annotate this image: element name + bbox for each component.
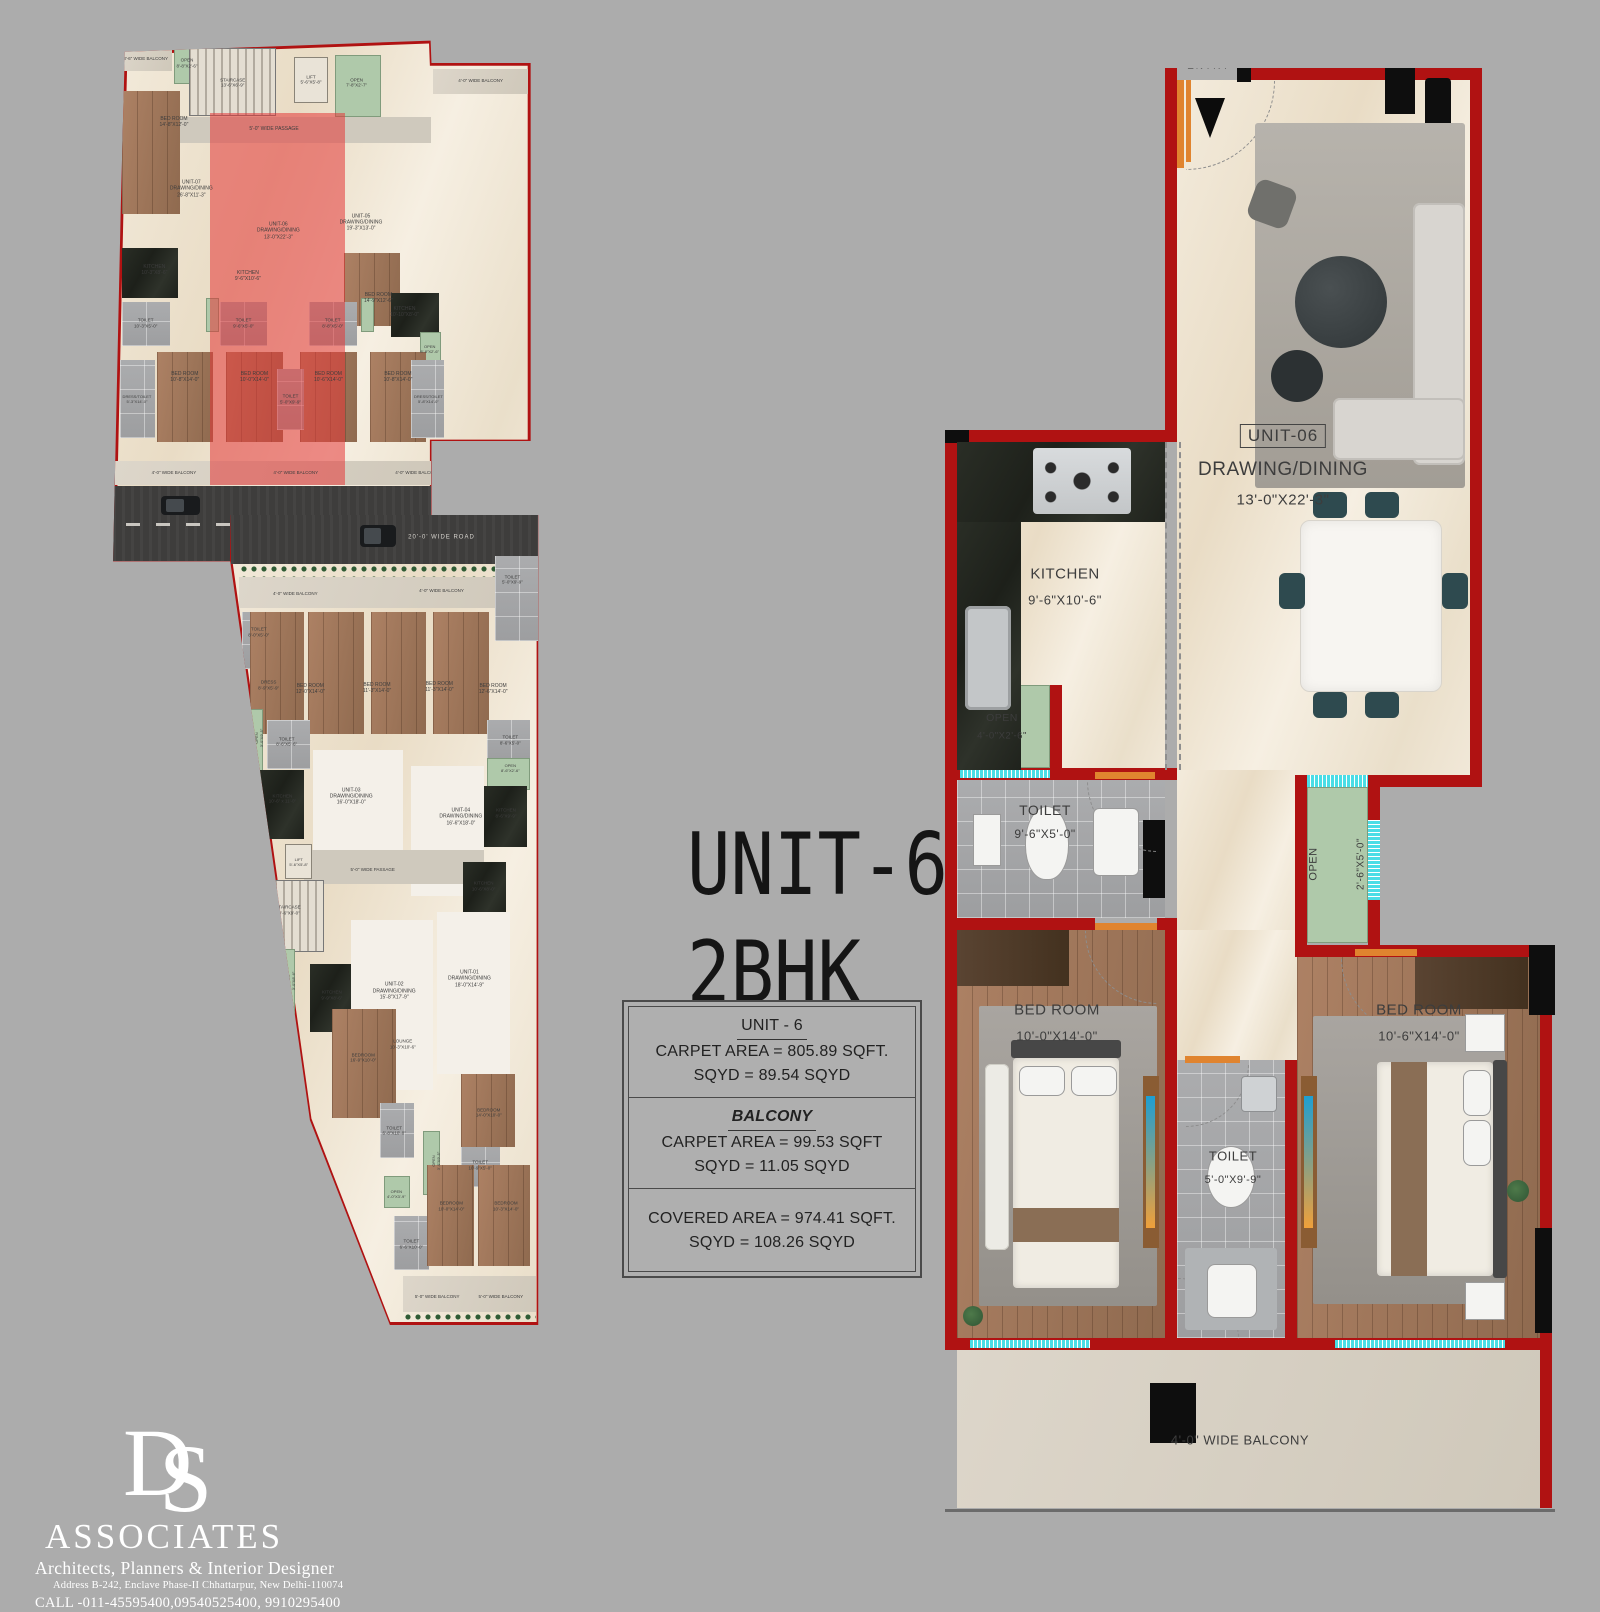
plan-room-label: OPEN 3'-0"X8'-6": [286, 971, 296, 990]
toilet-a-label: TOILET: [1019, 802, 1071, 818]
plan-room-label: KITCHEN 10'-6" x 11'-0": [269, 793, 296, 804]
plan-room-label: BED ROOM 11'-3"X14'-0": [425, 680, 453, 693]
washbasin-icon: [1093, 808, 1139, 876]
plan-area-wood: [427, 1165, 474, 1265]
plan-room-label: BED ROOM 12'-0"X14'-0": [296, 683, 325, 696]
logo-phone: CALL -011-45595400,09540525400, 99102954…: [35, 1595, 341, 1612]
plan-room-label: KITCHEN 9'-6"X10'-6": [235, 270, 261, 283]
column: [1535, 1228, 1552, 1333]
open-b-dim: 2'-6"X5'-0": [1356, 789, 1367, 939]
w-element: [945, 430, 1177, 442]
bedroom-right-dim: 10'-6"X14'-0": [1378, 1029, 1459, 1044]
plan-room-label: OPEN 8'-8"X2'-6": [177, 57, 198, 68]
plan-area-hedge: [239, 564, 536, 576]
balcony-label: 4'-0" WIDE BALCONY: [1171, 1433, 1309, 1448]
kitchen-divider-dashed: [1165, 442, 1181, 770]
plan-area-wood: [308, 612, 364, 734]
toilet-a-window: [960, 770, 1050, 778]
plan-room-label: TOILET 9'-6"X5'-0": [233, 318, 254, 329]
toilet-b-label: TOILET: [1209, 1149, 1257, 1164]
washbasin-icon: [1207, 1264, 1257, 1318]
pillow: [1019, 1066, 1065, 1096]
plan-room-label: 5'-0" WIDE BALCONY: [415, 1294, 460, 1300]
plan-room-label: BED ROOM 11'-3"X14'-0": [363, 681, 391, 694]
w-element: [1470, 68, 1482, 787]
plan-room-label: BED ROOM 10'-0"X14'-0": [240, 370, 269, 383]
logo-letter-s: S: [159, 1431, 212, 1527]
plant-icon: [1507, 1180, 1529, 1202]
wardrobe: [957, 930, 1069, 986]
plan-room-label: TOILET 5'-0"X9'-9": [280, 393, 301, 404]
toilet-a-dim: 9'-6"X5'-0": [1014, 827, 1075, 841]
plan-room-label: TOILET 8'-0"X5'-0": [248, 627, 269, 638]
bedroom-left-door: [1095, 923, 1157, 930]
w-element: [1540, 1350, 1552, 1508]
sink-icon: [965, 606, 1011, 710]
pillow: [1463, 1070, 1491, 1116]
plan-area-wood: [433, 612, 489, 734]
w-element: [945, 442, 957, 1350]
plan-room-label: KITCHEN 10'-10"X8'-0": [390, 306, 419, 319]
nightstand: [1465, 1282, 1505, 1320]
plan-room-label: DRESS/TOILET 5'-3"X14'-0": [123, 394, 152, 404]
w-element: [945, 918, 1095, 930]
bedroom-left-label: BED ROOM: [1014, 1002, 1100, 1019]
balcony-floor: [957, 1350, 1540, 1508]
key-plan-lower-rooms: 20'-0' WIDE ROAD4'-0" WIDE BALCONY4'-0" …: [205, 515, 635, 1325]
plan-room-label: STAIRCASE 13'-6"X6'-9": [220, 77, 245, 88]
plan-room-label: UNIT-03 DRAWING/DINING 16'-0"X18'-0": [330, 788, 373, 807]
plan-room-label: 5'-0" WIDE BALCONY: [478, 1294, 523, 1300]
w-element: [1285, 1060, 1297, 1338]
unit-number-badge: UNIT-06: [1240, 424, 1326, 448]
key-plan-upper-rooms: 3'-6" WIDE BALCONYOPEN 8'-8"X2'-6"STAIRC…: [100, 35, 535, 595]
plan-room-label: TOILET 8'-8"X5'-0": [322, 318, 343, 329]
entry-label: ENTRY: [1187, 68, 1231, 72]
plan-area-granite: [257, 770, 304, 839]
plan-room-label: UNIT-07 DRAWING/DINING 26'-8"X11'-3": [170, 180, 213, 199]
unit-6-plan: ENTRY UNIT-06 DRAWING/DINING 13'-0"X22'-…: [945, 68, 1560, 1523]
sheet-title: UNIT-6 2BHK: [687, 822, 948, 1016]
covered-sqyd: SQYD = 108.26 SQYD: [689, 1234, 855, 1251]
plan-room-label: 4'-0" WIDE BALCONY: [273, 470, 318, 476]
dining-chair: [1279, 573, 1305, 609]
balcony-sqyd: SQYD = 11.05 SQYD: [694, 1158, 850, 1175]
plan-room-label: OPEN 8'-8"X2'-6": [420, 344, 439, 354]
covered-area-section: COVERED AREA = 974.41 SQFT. SQYD = 108.2…: [629, 1188, 915, 1271]
plan-room-label: UNIT-05 DRAWING/DINING 19'-3"X13'-0": [340, 213, 383, 232]
bedroom-right-label: BED ROOM: [1376, 1002, 1462, 1019]
w-element: [1157, 918, 1177, 930]
drawing-dining-label: DRAWING/DINING: [1198, 459, 1368, 481]
plan-area-wood: [371, 612, 427, 734]
open-a-label: OPEN: [986, 712, 1018, 724]
plan-room-label: BEDROOM 16'-9"X10'-0": [350, 1052, 376, 1063]
bench: [985, 1064, 1009, 1250]
plan-room-label: 4'-0" WIDE BALCONY: [152, 470, 197, 476]
plan-room-label: 5'-0" WIDE PASSAGE: [249, 125, 298, 131]
bed-runner: [1391, 1062, 1427, 1276]
plan-area-wood: [157, 352, 214, 442]
plan-room-label: DRESS 8'-9"X5'-9": [258, 679, 279, 690]
plan-room-label: TOILET 10'-9"X5'-0": [468, 1160, 491, 1171]
logo-tagline: Architects, Planners & Interior Designer: [35, 1558, 334, 1579]
plan-room-label: LOUNGE 10'-3"X10'-6": [390, 1038, 416, 1049]
plan-room-label: BED ROOM 12'-6"X14'-0": [479, 683, 508, 696]
plan-area-wood: [332, 1009, 397, 1118]
sofa-horizontal: [1333, 398, 1465, 460]
plan-room-label: UNIT-01 DRAWING/DINING 18'-0"X14'-9": [448, 970, 491, 989]
toilet-b-dim: 5'-0"X9'-9": [1205, 1174, 1262, 1186]
bedroom-left-balcony-window: [970, 1340, 1090, 1348]
key-plan-lower: 20'-0' WIDE ROAD4'-0" WIDE BALCONY4'-0" …: [205, 515, 635, 1325]
open-b-label-group: OPEN 2'-6"X5'-0": [1272, 789, 1403, 939]
kitchen-dim: 9'-6"X10'-6": [1028, 593, 1102, 608]
column: [1237, 68, 1251, 82]
plan-area-car: [161, 496, 200, 515]
unit-area-section: UNIT - 6 CARPET AREA = 805.89 SQFT. SQYD…: [629, 1007, 915, 1097]
plan-room-label: BED ROOM 10'-8"X14'-0": [384, 370, 413, 383]
plan-room-label: BEDROOM 14'-0"X10'-0": [476, 1107, 502, 1118]
dining-chair: [1442, 573, 1468, 609]
logo-name: ASSOCIATES: [45, 1517, 283, 1557]
stove-icon: [1033, 448, 1131, 514]
w-element: [1050, 685, 1062, 780]
plan-room-label: BED ROOM 14'-8"X12'-0": [160, 116, 189, 129]
balcony-carpet-area: CARPET AREA = 99.53 SQFT: [661, 1134, 882, 1151]
dining-chair: [1313, 692, 1347, 718]
unit-heading: UNIT - 6: [737, 1014, 807, 1040]
plan-area-car: [360, 525, 397, 548]
plan-room-label: OPEN 7'-8"X2'-7": [346, 77, 367, 88]
side-table: [1271, 350, 1323, 402]
key-plan-upper: 3'-6" WIDE BALCONYOPEN 8'-8"X2'-6"STAIRC…: [100, 35, 535, 595]
plan-area-redov: [210, 113, 345, 485]
plan-room-label: DRESS/TOILET 5'-8"X14'-0": [414, 394, 443, 404]
plan-room-label: TOILET 8'-6"X5'-6": [276, 736, 297, 747]
bed-throw: [1013, 1208, 1119, 1242]
plan-room-label: OPEN 3'-0"X9'-5": [431, 1152, 441, 1171]
floor-plan-sheet: { "colors":{ "background":"#ACACAC","wal…: [0, 0, 1600, 1600]
plan-room-label: 5'-0" WIDE PASSAGE: [350, 867, 394, 873]
plan-room-label: UNIT-02 DRAWING/DINING 15'-8"X17'-9": [373, 982, 416, 1001]
div: [945, 1509, 1555, 1512]
plan-area-white: [437, 912, 510, 1074]
column: [1529, 945, 1555, 1015]
plan-room-label: 4'-0" WIDE BALCONY: [458, 78, 503, 84]
balcony-area-section: BALCONY CARPET AREA = 99.53 SQFT SQYD = …: [629, 1097, 915, 1188]
plan-area-hedge: [403, 1312, 536, 1324]
unit-sqyd: SQYD = 89.54 SQYD: [694, 1067, 851, 1084]
plan-room-label: 4'-0" WIDE BALCONY: [419, 588, 464, 594]
plan-room-label: OPEN 3'-0"X9'-5": [254, 728, 264, 747]
logo-monogram: D S: [123, 1415, 263, 1523]
plan-room-label: TOILET 6'-6"X10'-0": [400, 1238, 423, 1249]
plant-icon: [963, 1306, 983, 1326]
plan-area-striped: [259, 880, 324, 953]
logo-address: Address B-242, Enclave Phase-II Chhattar…: [53, 1580, 343, 1591]
plan-room-label: BEDROOM 10'-0"X14'-0": [438, 1200, 464, 1211]
w-element: [1368, 775, 1482, 787]
open-b-top-window: [1307, 775, 1368, 787]
entry-door-frame: [1177, 80, 1184, 168]
w-element: [1165, 68, 1177, 80]
hall-floor-2: [1177, 930, 1297, 1060]
entry-arrow-icon: [1195, 98, 1225, 138]
plan-room-label: LIFT 5'-6"X5'-8": [301, 74, 322, 85]
toilet-a-door: [1095, 772, 1155, 779]
plan-room-label: TOILET 5'-0"X9'-9": [502, 574, 523, 585]
drawing-dining-dim: 13'-0"X22'-3": [1237, 492, 1330, 509]
plan-room-label: BED ROOM 10'-8"X14'-0": [170, 370, 199, 383]
plan-room-label: 20'-0' WIDE ROAD: [408, 534, 475, 542]
plan-room-label: OPEN 4'-0"X3'-9": [387, 1189, 406, 1199]
covered-area: COVERED AREA = 974.41 SQFT.: [648, 1210, 896, 1227]
plan-room-label: UNIT-04 DRAWING/DINING 16'-6"X18'-0": [439, 808, 482, 827]
area-info-box: UNIT - 6 CARPET AREA = 805.89 SQFT. SQYD…: [622, 1000, 922, 1278]
open-a-dim: 4'-0"X2'-6": [977, 731, 1027, 742]
plan-room-label: BED ROOM 14'-9"X12'-6": [364, 292, 393, 305]
w-element: [1165, 930, 1177, 1338]
plan-room-label: UNIT-06 DRAWING/DINING 13'-0"X22'-3": [257, 222, 300, 241]
plan-room-label: BED ROOM 10'-6"X14'-0": [314, 370, 343, 383]
plan-room-label: 4'-0" WIDE BALCONY: [273, 591, 318, 597]
plan-room-label: KITCHEN 8'-6"X9'-9": [496, 807, 517, 818]
bed-headboard: [1493, 1060, 1507, 1278]
plan-room-label: 3'-6" WIDE BALCONY: [123, 56, 168, 62]
pillow: [1463, 1120, 1491, 1166]
plan-room-label: KITCHEN 10'-6"X8'-0": [472, 880, 495, 891]
plan-area-wood: [478, 1165, 530, 1265]
plan-room-label: KITCHEN 9'-9"X8'-6": [321, 990, 342, 1001]
shower-icon: [1241, 1076, 1277, 1112]
plan-area-tile: [495, 556, 538, 641]
w-element: [1295, 945, 1552, 957]
inner-element: UNIT - 6 CARPET AREA = 805.89 SQFT. SQYD…: [628, 1006, 916, 1272]
w-element: [1165, 80, 1177, 430]
plan-room-label: TOILET 8'-6"X5'-0": [500, 735, 521, 746]
plan-room-label: TOILET 10'-3"X5'-0": [134, 318, 157, 329]
bedroom-right-door: [1355, 949, 1417, 956]
cistern-icon: [973, 814, 1001, 866]
dining-chair: [1365, 492, 1399, 518]
unit-carpet-area: CARPET AREA = 805.89 SQFT.: [655, 1043, 888, 1060]
plan-room-label: TOILET 6'-8"X10'-0": [382, 1125, 405, 1136]
kitchen-label: KITCHEN: [1030, 566, 1099, 583]
dining-table: [1300, 520, 1442, 692]
bedroom-right-balcony-window: [1335, 1340, 1505, 1348]
plan-room-label: STAIRCASE 14'-6"X9'-0": [275, 905, 300, 916]
plan-room-label: 4'-0" WIDE BALCONY: [395, 470, 440, 476]
coffee-table: [1295, 256, 1387, 348]
dining-chair: [1365, 692, 1399, 718]
pillow: [1071, 1066, 1117, 1096]
title-unit: UNIT-6: [687, 822, 948, 908]
bedroom-left-dim: 10'-0"X14'-0": [1016, 1029, 1097, 1044]
open-b-label: OPEN: [1308, 789, 1320, 939]
tv-screen: [1304, 1096, 1313, 1228]
tv-screen: [1146, 1096, 1155, 1228]
plan-room-label: KITCHEN 10'-3"X8'-6": [141, 264, 167, 277]
nightstand: [1465, 1014, 1505, 1052]
plan-room-label: LIFT 5'-6"X5'-8": [289, 857, 308, 867]
column: [1385, 68, 1415, 114]
balcony-heading: BALCONY: [728, 1105, 817, 1131]
plan-room-label: OPEN 8'-6"X2'-6": [501, 763, 520, 773]
plan-room-label: BEDROOM 10'-3"X14'-0": [493, 1200, 519, 1211]
toilet-b-door: [1185, 1056, 1240, 1063]
